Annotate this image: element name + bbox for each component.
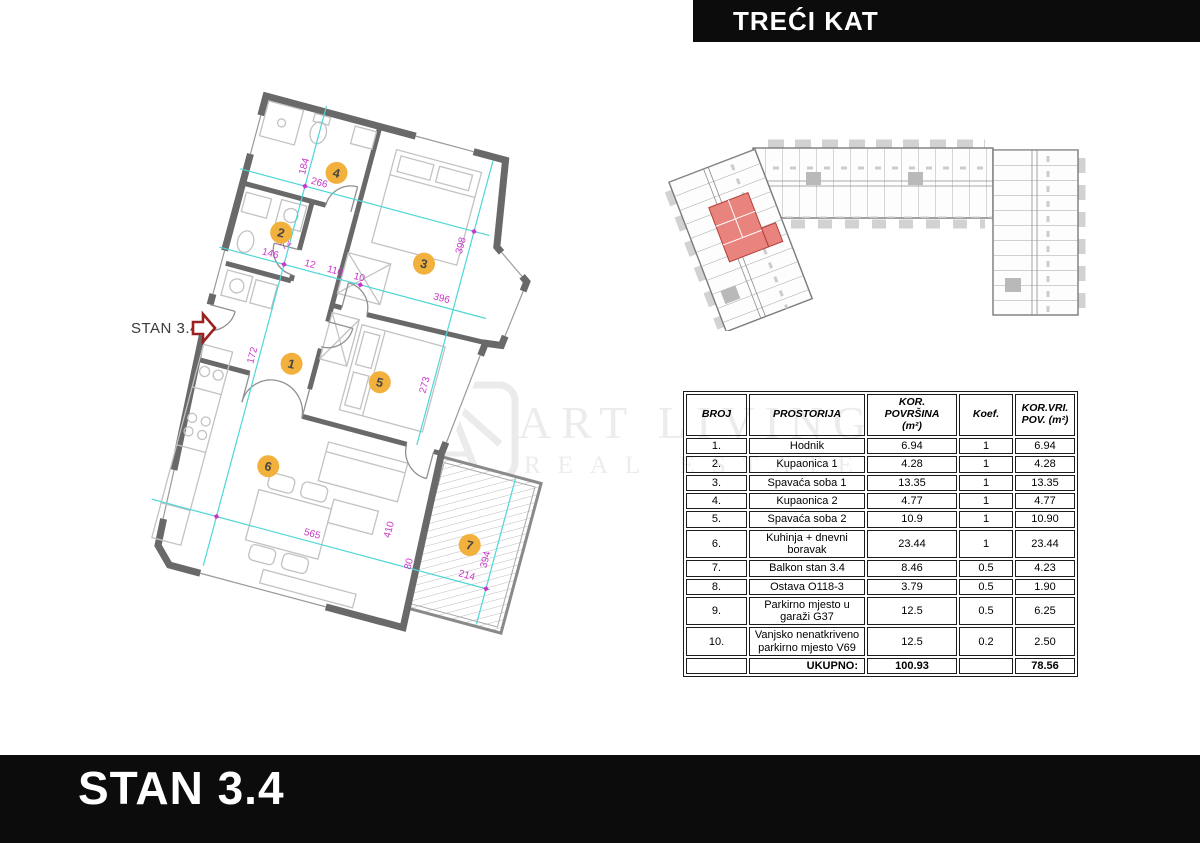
apartment-title: STAN 3.4 — [0, 755, 285, 815]
col-header-povrsina: KOR. POVRŠINA (m²) — [867, 394, 957, 436]
table-row: 5.Spavaća soba 2 10.91 10.90 — [686, 511, 1075, 527]
table-row: 7.Balkon stan 3.4 8.460.5 4.23 — [686, 560, 1075, 576]
table-row: 6.Kuhinja + dnevni boravak 23.441 23.44 — [686, 530, 1075, 559]
table-row: 10.Vanjsko nenatkriveno parkirno mjesto … — [686, 627, 1075, 656]
overview-right-wing — [993, 150, 1081, 315]
overview-central-bar — [753, 144, 993, 224]
table-total-row: UKUPNO: 100.93 78.56 — [686, 658, 1075, 674]
entry-label: STAN 3.4 — [131, 320, 199, 337]
building-overview-map — [645, 126, 1100, 331]
table-header-row: BROJ PROSTORIJA KOR. POVRŠINA (m²) Koef.… — [686, 394, 1075, 436]
table-row: 1.Hodnik 6.941 6.94 — [686, 438, 1075, 454]
floor-plan: 184 266 72 146 12 110 10 396 398 172 273… — [85, 70, 575, 695]
col-header-broj: BROJ — [686, 394, 747, 436]
col-header-vrijednost: KOR.VRI. POV. (m²) — [1015, 394, 1075, 436]
table-row: 3.Spavaća soba 1 13.351 13.35 — [686, 475, 1075, 491]
col-header-prostorija: PROSTORIJA — [749, 394, 865, 436]
table-row: 8.Ostava O118-3 3.790.5 1.90 — [686, 579, 1075, 595]
table-row: 9.Parkirno mjesto u garaži G37 12.50.5 6… — [686, 597, 1075, 626]
floor-title-banner: TREĆI KAT — [693, 0, 1200, 42]
areas-table: BROJ PROSTORIJA KOR. POVRŠINA (m²) Koef.… — [683, 391, 1078, 677]
floor-title: TREĆI KAT — [693, 6, 879, 37]
total-label: UKUPNO: — [749, 658, 865, 674]
col-header-koef: Koef. — [959, 394, 1013, 436]
table-row: 2.Kupaonica 1 4.281 4.28 — [686, 456, 1075, 472]
total-povrsina: 100.93 — [867, 658, 957, 674]
apartment-title-banner: STAN 3.4 — [0, 755, 1200, 843]
table-row: 4.Kupaonica 2 4.771 4.77 — [686, 493, 1075, 509]
page: ART LIVING REAL ESTATE TREĆI KAT STAN 3.… — [0, 0, 1200, 843]
total-vrijednost: 78.56 — [1015, 658, 1075, 674]
